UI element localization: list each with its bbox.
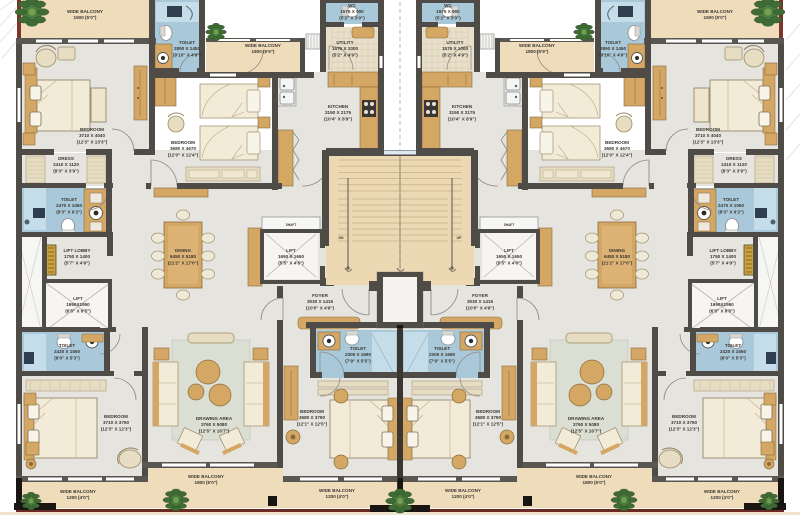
svg-text:TOILET: TOILET (723, 197, 739, 202)
svg-text:1800 (6'9"): 1800 (6'9") (252, 49, 275, 54)
svg-text:BEDROOM: BEDROOM (605, 140, 629, 145)
svg-text:(12'3" X 13'3"): (12'3" X 13'3") (77, 139, 108, 144)
svg-text:(9'10" X 4'9"): (9'10" X 4'9") (173, 52, 201, 57)
svg-text:3030 X 1415: 3030 X 1415 (467, 299, 494, 304)
svg-text:BEDROOM: BEDROOM (696, 127, 720, 132)
svg-text:(12'0" X 12'4"): (12'0" X 12'4") (168, 152, 199, 157)
svg-text:BEDROOM: BEDROOM (476, 409, 500, 414)
svg-text:(12'3" X 13'3"): (12'3" X 13'3") (693, 139, 724, 144)
svg-text:3710 X 3750: 3710 X 3750 (671, 420, 698, 425)
svg-text:(7'9" X 5'5"): (7'9" X 5'5") (429, 358, 455, 363)
svg-text:1200 (4'0"): 1200 (4'0") (326, 494, 349, 499)
svg-text:UTILITY: UTILITY (446, 40, 463, 45)
svg-text:WC: WC (444, 3, 452, 8)
svg-text:BEDROOM: BEDROOM (672, 414, 696, 419)
svg-text:TOILET: TOILET (725, 343, 741, 348)
svg-text:WIDE BALCONY: WIDE BALCONY (60, 489, 96, 494)
svg-text:(5'2" X 4'9"): (5'2" X 4'9") (442, 52, 468, 57)
svg-text:(8'3" X 6'2"): (8'3" X 6'2") (718, 209, 744, 214)
svg-text:6450 X 5180: 6450 X 5180 (170, 254, 197, 259)
svg-text:1575 X 900: 1575 X 900 (340, 9, 364, 14)
svg-text:(7'9" X 5'5"): (7'9" X 5'5") (345, 358, 371, 363)
svg-text:BEDROOM: BEDROOM (80, 127, 104, 132)
svg-text:1950X1950: 1950X1950 (710, 302, 734, 307)
svg-text:3710 X 4040: 3710 X 4040 (79, 133, 106, 138)
svg-text:WIDE BALCONY: WIDE BALCONY (697, 9, 733, 14)
svg-text:(12'3" X 12'3"): (12'3" X 12'3") (669, 426, 700, 431)
svg-text:2410 X 1120: 2410 X 1120 (53, 162, 79, 167)
svg-text:(8'0" X 5'3"): (8'0" X 5'3") (720, 355, 746, 360)
svg-text:(5'2" X 3'0"): (5'2" X 3'0") (435, 15, 461, 20)
svg-text:3760 X 5080: 3760 X 5080 (573, 422, 600, 427)
svg-text:DRAWING AREA: DRAWING AREA (196, 416, 233, 421)
svg-text:(10'0" X 4'9"): (10'0" X 4'9") (306, 305, 334, 310)
svg-text:WIDE BALCONY: WIDE BALCONY (245, 43, 281, 48)
svg-text:(9'10" X 4'9"): (9'10" X 4'9") (599, 52, 627, 57)
svg-text:TOILET: TOILET (61, 197, 77, 202)
svg-text:(12'1" X 12'5"): (12'1" X 12'5") (297, 421, 328, 426)
svg-text:(8'3" X 6'2"): (8'3" X 6'2") (56, 209, 82, 214)
svg-text:3150 X 2175: 3150 X 2175 (449, 110, 476, 115)
svg-text:(10'0" X 4'9"): (10'0" X 4'9") (466, 305, 494, 310)
svg-text:(10'4" X 8'9"): (10'4" X 8'9") (324, 116, 352, 121)
svg-text:3680 X 4670: 3680 X 4670 (170, 146, 197, 151)
svg-text:(21'2" X 17'0"): (21'2" X 17'0") (602, 260, 633, 265)
svg-text:(12'3" X 12'3"): (12'3" X 12'3") (101, 426, 132, 431)
svg-text:KITCHEN: KITCHEN (452, 104, 473, 109)
svg-text:2305 X 1690: 2305 X 1690 (429, 352, 456, 357)
svg-text:TOILET: TOILET (605, 40, 621, 45)
svg-text:1800 (6'0"): 1800 (6'0") (195, 480, 218, 485)
svg-text:(12'5" X 16'7"): (12'5" X 16'7") (571, 428, 602, 433)
svg-text:3150 X 2175: 3150 X 2175 (325, 110, 352, 115)
svg-text:6450 X 5180: 6450 X 5180 (604, 254, 631, 259)
svg-text:SHAFT: SHAFT (504, 223, 515, 227)
svg-text:(6'5" X 6'5"): (6'5" X 6'5") (709, 308, 735, 313)
svg-text:1650 X 1650: 1650 X 1650 (496, 254, 523, 259)
svg-text:DN: DN (339, 236, 344, 240)
svg-text:BEDROOM: BEDROOM (104, 414, 128, 419)
svg-text:3710 X 3750: 3710 X 3750 (103, 420, 130, 425)
svg-text:2410 X 1120: 2410 X 1120 (721, 162, 747, 167)
svg-text:(8'3" X 3'9"): (8'3" X 3'9") (721, 168, 747, 173)
svg-text:1950X1950: 1950X1950 (66, 302, 90, 307)
svg-text:LIFT LOBBY: LIFT LOBBY (63, 248, 90, 253)
svg-text:(21'2" X 17'0"): (21'2" X 17'0") (168, 260, 199, 265)
svg-text:TOILET: TOILET (350, 346, 366, 351)
svg-text:DRESS: DRESS (58, 156, 74, 161)
svg-text:1750 X 1400: 1750 X 1400 (64, 254, 91, 259)
svg-text:1500 (5'0"): 1500 (5'0") (74, 15, 97, 20)
svg-text:(12'1" X 12'5"): (12'1" X 12'5") (473, 421, 504, 426)
svg-text:TOILET: TOILET (59, 343, 75, 348)
svg-text:FOYER: FOYER (472, 293, 489, 298)
svg-text:3680 X 3790: 3680 X 3790 (475, 415, 502, 420)
svg-text:(5'2" X 4'9"): (5'2" X 4'9") (332, 52, 358, 57)
svg-text:LIFT: LIFT (286, 248, 296, 253)
svg-text:3680 X 4670: 3680 X 4670 (604, 146, 631, 151)
svg-text:TOILET: TOILET (179, 40, 195, 45)
svg-text:(5'2" X 3'0"): (5'2" X 3'0") (339, 15, 365, 20)
svg-text:DINING: DINING (175, 248, 192, 253)
svg-text:KITCHEN: KITCHEN (328, 104, 349, 109)
svg-text:LIFT: LIFT (504, 248, 514, 253)
svg-text:BEDROOM: BEDROOM (171, 140, 195, 145)
svg-text:WIDE BALCONY: WIDE BALCONY (519, 43, 555, 48)
svg-text:(5'5" X 4'6"): (5'5" X 4'6") (278, 260, 304, 265)
svg-text:3030 X 1415: 3030 X 1415 (307, 299, 334, 304)
svg-text:WIDE BALCONY: WIDE BALCONY (576, 474, 612, 479)
svg-text:1800 (6'9"): 1800 (6'9") (526, 49, 549, 54)
svg-text:TOILET: TOILET (434, 346, 450, 351)
svg-text:DRAWING AREA: DRAWING AREA (568, 416, 605, 421)
svg-text:WIDE BALCONY: WIDE BALCONY (319, 488, 355, 493)
svg-text:(12'5" X 16'7"): (12'5" X 16'7") (199, 428, 230, 433)
svg-text:2305 X 1690: 2305 X 1690 (345, 352, 372, 357)
svg-text:1500 (5'0"): 1500 (5'0") (704, 15, 727, 20)
svg-text:LIFT LOBBY: LIFT LOBBY (709, 248, 736, 253)
svg-text:3680 X 3790: 3680 X 3790 (299, 415, 326, 420)
svg-text:(5'7" X 4'9"): (5'7" X 4'9") (64, 260, 90, 265)
svg-text:2890 X 1450: 2890 X 1450 (174, 46, 201, 51)
svg-text:LIFT: LIFT (73, 296, 83, 301)
svg-text:DINING: DINING (609, 248, 626, 253)
svg-text:1750 X 1400: 1750 X 1400 (710, 254, 737, 259)
svg-text:SHAFT: SHAFT (286, 223, 297, 227)
svg-text:UP: UP (457, 236, 462, 240)
svg-text:(6'5" X 6'5"): (6'5" X 6'5") (65, 308, 91, 313)
svg-text:WIDE BALCONY: WIDE BALCONY (445, 488, 481, 493)
svg-text:1575 X 900: 1575 X 900 (436, 9, 460, 14)
svg-text:(10'4" X 8'9"): (10'4" X 8'9") (448, 116, 476, 121)
svg-text:1650 X 1650: 1650 X 1650 (278, 254, 305, 259)
svg-text:WC: WC (348, 3, 356, 8)
svg-text:2420 X 1550: 2420 X 1550 (54, 349, 81, 354)
svg-text:WIDE BALCONY: WIDE BALCONY (188, 474, 224, 479)
svg-text:(8'0" X 5'3"): (8'0" X 5'3") (54, 355, 80, 360)
svg-text:1800 (6'0"): 1800 (6'0") (583, 480, 606, 485)
svg-text:LIFT: LIFT (717, 296, 727, 301)
svg-text:3710 X 4040: 3710 X 4040 (695, 133, 722, 138)
svg-text:2470 X 1060: 2470 X 1060 (718, 203, 745, 208)
svg-text:2890 X 1450: 2890 X 1450 (600, 46, 627, 51)
svg-text:1200 (4'0"): 1200 (4'0") (452, 494, 475, 499)
svg-text:(5'7" X 4'9"): (5'7" X 4'9") (710, 260, 736, 265)
svg-text:DRESS: DRESS (726, 156, 742, 161)
svg-text:(12'0" X 12'4"): (12'0" X 12'4") (602, 152, 633, 157)
svg-text:1200 (4'0"): 1200 (4'0") (711, 495, 734, 500)
svg-text:UTILITY: UTILITY (336, 40, 353, 45)
svg-text:2420 X 1550: 2420 X 1550 (720, 349, 747, 354)
svg-text:1575 X 1000: 1575 X 1000 (442, 46, 469, 51)
svg-text:WIDE BALCONY: WIDE BALCONY (704, 489, 740, 494)
svg-text:3760 X 5080: 3760 X 5080 (201, 422, 228, 427)
svg-text:FOYER: FOYER (312, 293, 329, 298)
svg-text:WIDE BALCONY: WIDE BALCONY (67, 9, 103, 14)
svg-text:(8'3" X 3'9"): (8'3" X 3'9") (53, 168, 79, 173)
svg-text:(5'5" X 4'6"): (5'5" X 4'6") (496, 260, 522, 265)
svg-text:1575 X 1000: 1575 X 1000 (332, 46, 359, 51)
svg-text:2470 X 1060: 2470 X 1060 (56, 203, 83, 208)
svg-text:BEDROOM: BEDROOM (300, 409, 324, 414)
svg-text:1200 (4'0"): 1200 (4'0") (67, 495, 90, 500)
